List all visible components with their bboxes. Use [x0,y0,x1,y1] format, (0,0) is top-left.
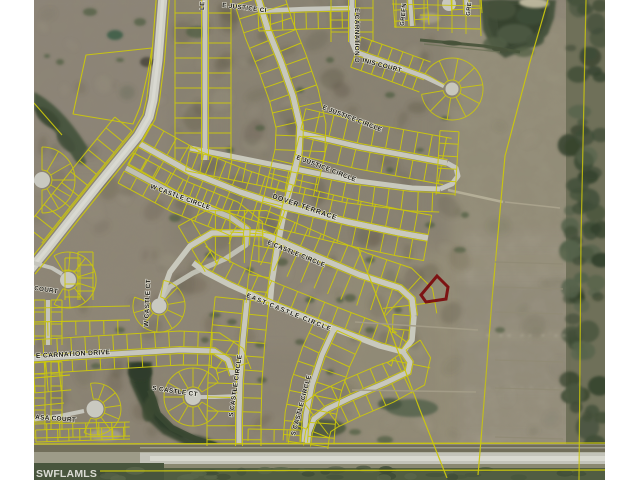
svg-text:SWFLAMLS: SWFLAMLS [36,468,97,480]
svg-text:GRE: GRE [466,2,473,16]
svg-text:E CARNATION D: E CARNATION D [353,8,360,63]
svg-text:LE: LE [199,1,206,10]
